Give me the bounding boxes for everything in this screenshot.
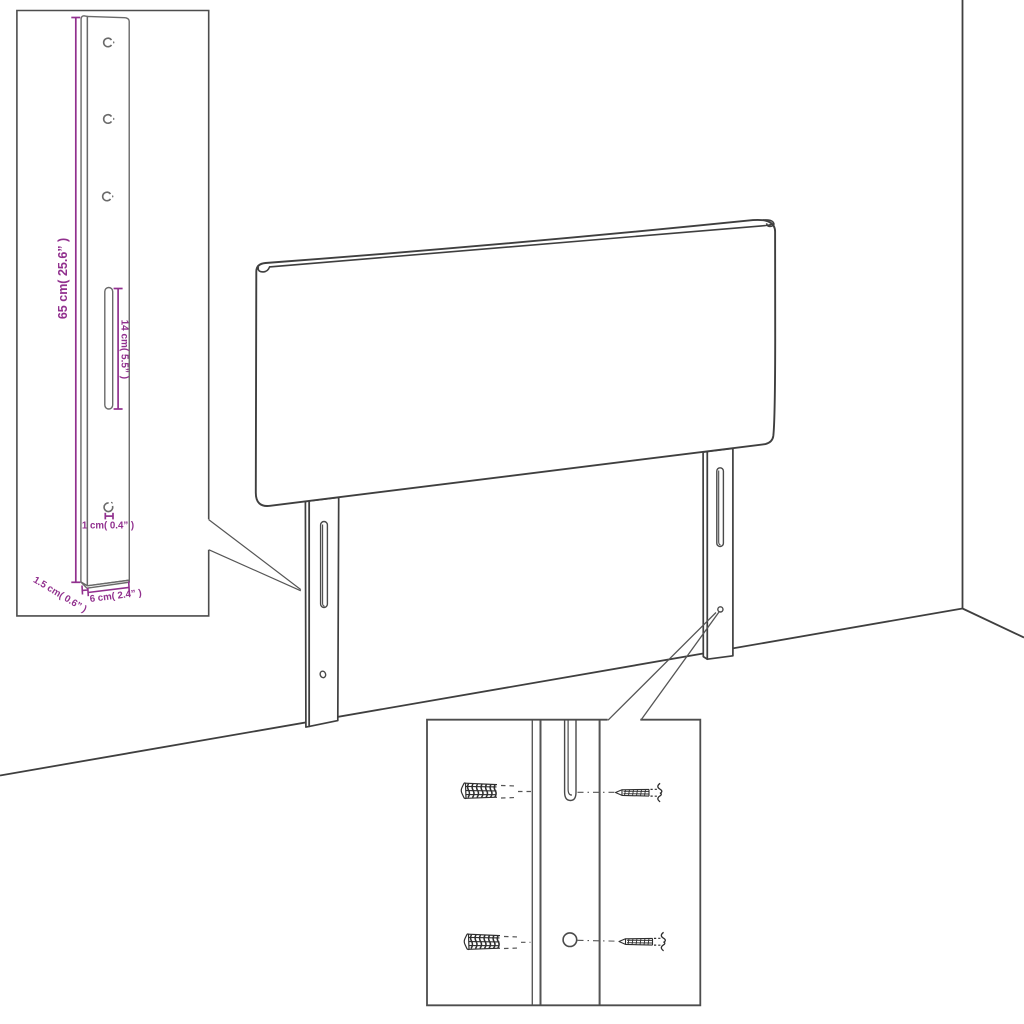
svg-text:14 cm( 5.5” ): 14 cm( 5.5” )	[119, 320, 130, 379]
svg-text:1 cm( 0.4” ): 1 cm( 0.4” )	[82, 521, 134, 532]
svg-text:65 cm( 25.6” ): 65 cm( 25.6” )	[56, 238, 70, 319]
svg-text:1.5 cm( 0.6” ): 1.5 cm( 0.6” )	[31, 575, 88, 615]
svg-text:6 cm( 2.4” ): 6 cm( 2.4” )	[89, 588, 142, 605]
